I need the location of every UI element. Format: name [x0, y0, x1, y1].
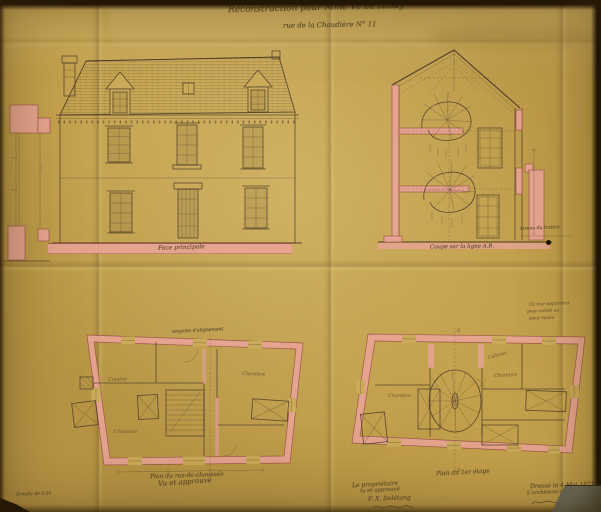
room-label: Chambre [494, 372, 518, 379]
attic-window [183, 83, 194, 94]
photo-edge-right [591, 0, 601, 512]
vertical-fold-center [324, 0, 336, 512]
chimney [62, 56, 77, 96]
walls-cut [392, 85, 544, 242]
photo-edge-bottom [0, 505, 601, 512]
room-label: Chambre [114, 429, 137, 435]
drawing-subtitle: rue de la Chaudière N° 11 [283, 20, 377, 30]
spiral-staircase [421, 92, 476, 240]
margin-note-line: Ce mur appartient [529, 301, 570, 307]
room-label: Cabinet [487, 350, 509, 361]
photo-edge-top [0, 0, 601, 10]
window-first-floor-center [173, 123, 201, 169]
room-label: Cuisine [108, 376, 127, 383]
section-letter-top: B [456, 328, 461, 334]
wall-openings [92, 337, 297, 465]
photographed-architectural-drawing: Reconstruction pour Mme Ve de Athay rue … [0, 0, 601, 512]
margin-note-line: sieur voisin [529, 315, 554, 321]
section-window-upper [478, 128, 502, 168]
interior-partitions [94, 330, 284, 478]
room-label: Chambre [388, 393, 411, 399]
scale-note: Échelle de 0,01 [16, 491, 51, 497]
room-label: Chambre [242, 371, 266, 378]
entrance-door [174, 183, 202, 238]
staircase [166, 390, 204, 436]
photo-edge-left [0, 0, 5, 512]
window-ground-floor-left [107, 191, 135, 233]
first-floor-plan-drawing: Chambre Chambre Cabinet B B [342, 325, 597, 480]
owner-block-line: F. X. Delétang [368, 494, 411, 502]
section-caption: Coupe sur la ligne A.B. [430, 243, 494, 250]
owner-block-line: lu et approuvé [360, 486, 400, 494]
window-first-floor-right [240, 125, 266, 169]
horizontal-fold-middle [0, 260, 601, 272]
ground-floor-plan-drawing: Cuisine Chambre Chambre [58, 328, 318, 488]
window-ground-floor-right [242, 186, 270, 229]
elevation-drawing [42, 46, 317, 258]
section-window-lower [477, 195, 499, 238]
floor-slabs [399, 128, 514, 192]
margin-note-line: pour moitié au [527, 308, 559, 314]
winding-staircase [428, 327, 486, 475]
ink-spot [546, 240, 551, 245]
window-first-floor-left [105, 126, 133, 163]
